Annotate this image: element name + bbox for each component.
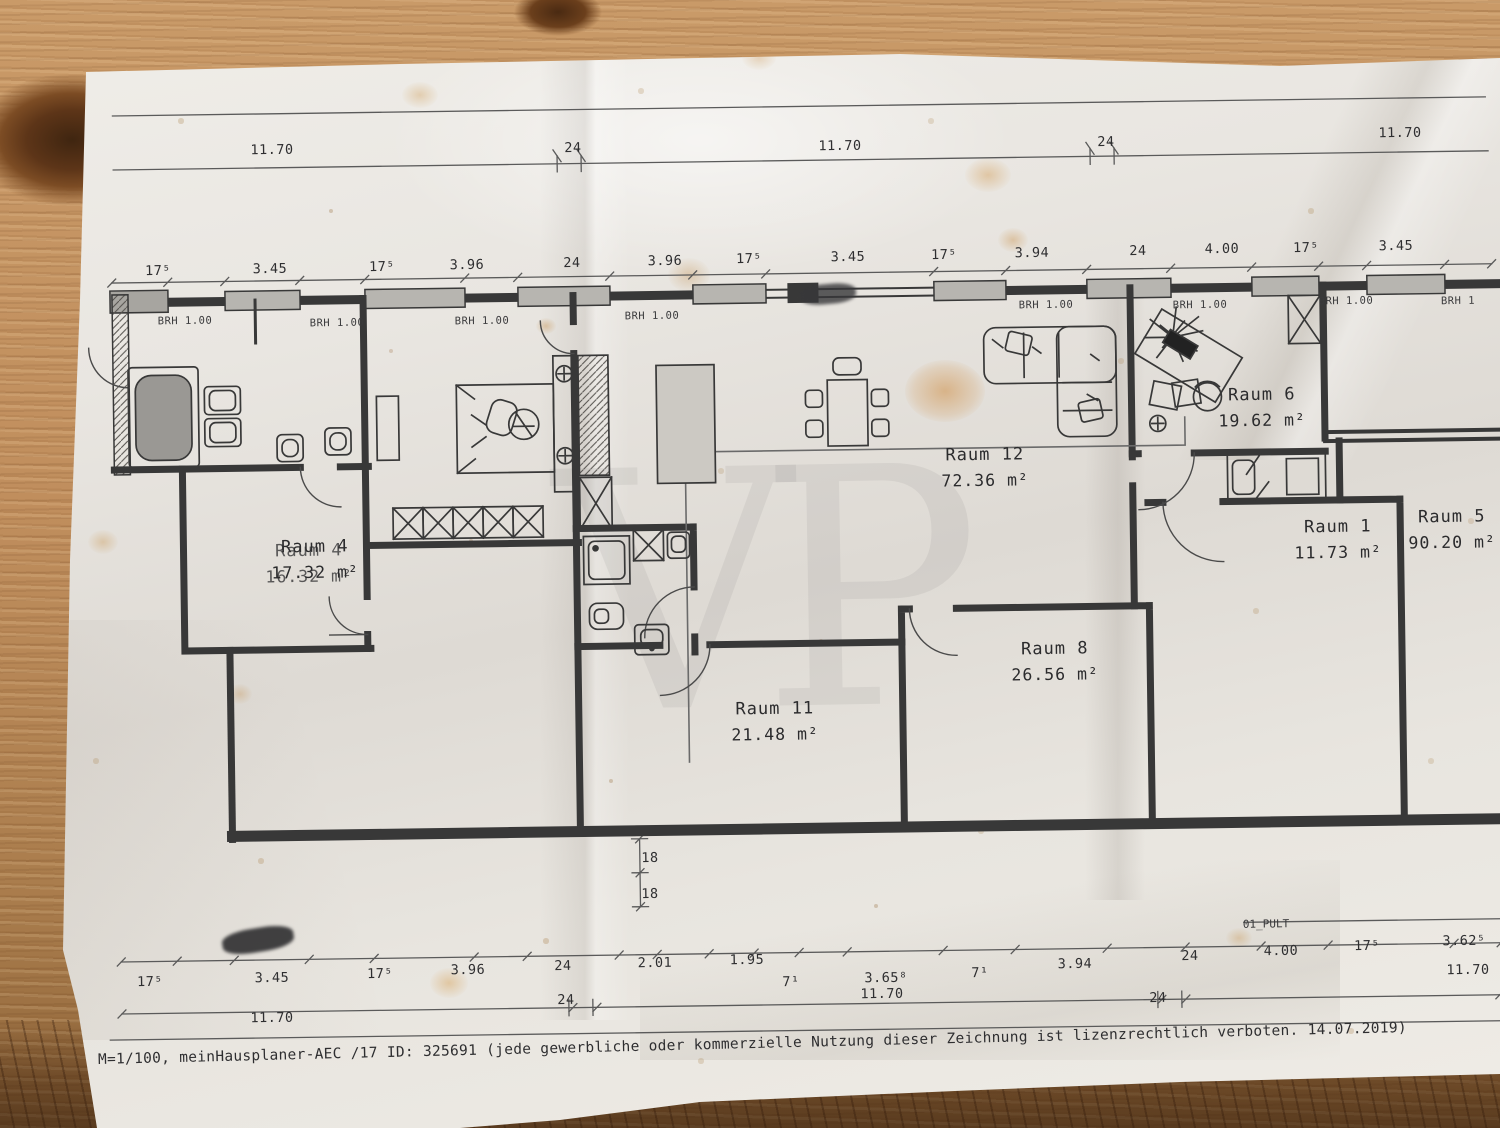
dim-bottom: 3.62⁵ xyxy=(1442,933,1485,950)
dim-top-win: 3.96 xyxy=(648,253,683,269)
room-label-raum5: Raum 590.20 m² xyxy=(1408,504,1496,555)
dim-1170: 11.70 xyxy=(860,986,903,1003)
shower xyxy=(583,536,630,585)
pult-label: 01_PULT xyxy=(1243,917,1290,931)
dim-bottom: 3.65⁸ xyxy=(864,970,907,987)
dim-bottom: 24 xyxy=(1181,948,1198,964)
dim-top-main: 11.70 xyxy=(250,142,293,159)
toilet xyxy=(277,434,303,461)
room-label-raum4: Raum 417.32 m² xyxy=(271,534,359,585)
brh-label: BRH 1.00 xyxy=(455,315,510,328)
dim-1170: 11.70 xyxy=(1446,962,1489,979)
dim-top-win: 4.00 xyxy=(1205,241,1240,257)
wc-toilet xyxy=(589,603,623,629)
washbasin xyxy=(635,624,669,654)
shower-room-cabinet xyxy=(633,529,663,560)
dim-top-win: 17⁵ xyxy=(1293,240,1319,256)
dim-18: 18 xyxy=(641,850,658,866)
dim-18: 18 xyxy=(641,886,658,902)
dim-top-win: 17⁵ xyxy=(736,251,762,267)
dim-bottom: 4.00 xyxy=(1264,943,1299,959)
brh-label: BRH 1 xyxy=(1441,295,1475,307)
wardrobe xyxy=(393,506,543,539)
dim-bottom: 2.01 xyxy=(638,955,673,971)
floor-outlet xyxy=(1150,415,1166,431)
kitchen-island xyxy=(656,365,716,484)
dim-bottom: 17⁵ xyxy=(137,974,163,990)
dim-24: 24 xyxy=(1149,990,1166,1006)
floorplan-paper-sheet: VP xyxy=(0,0,1500,1128)
dim-bottom: 3.94 xyxy=(1058,956,1093,972)
double-bed xyxy=(456,384,554,473)
dim-1170: 11.70 xyxy=(250,1010,293,1027)
brh-label: BRH 1.00 xyxy=(1019,299,1074,312)
room-label-raum6: Raum 619.62 m² xyxy=(1218,382,1306,433)
dim-bottom: 17⁵ xyxy=(1354,938,1380,954)
dim-top-main: 24 xyxy=(564,140,581,156)
dim-top-win: 24 xyxy=(1129,243,1146,259)
corner-sofa xyxy=(983,326,1117,438)
bidet xyxy=(325,428,351,455)
room-label-raum8: Raum 826.56 m² xyxy=(1011,636,1099,687)
kitchen-cabinets xyxy=(578,355,612,529)
dim-bottom: 3.96 xyxy=(451,962,486,978)
dim-bottom: 24 xyxy=(554,958,571,974)
dim-24: 24 xyxy=(557,992,574,1008)
dim-top-win: 17⁵ xyxy=(369,259,395,275)
photo-of-floorplan: VP xyxy=(0,0,1500,1128)
dim-bottom: 17⁵ xyxy=(367,966,393,982)
dim-top-win: 17⁵ xyxy=(145,263,171,279)
dim-top-win: 24 xyxy=(563,255,580,271)
dim-top-main: 24 xyxy=(1097,134,1114,150)
brh-label: BRH 1.00 xyxy=(310,317,365,330)
dresser xyxy=(376,396,399,460)
dim-top-win: 3.45 xyxy=(831,249,866,265)
dim-top-win: 3.45 xyxy=(253,261,288,277)
dim-top-main: 11.70 xyxy=(1378,125,1421,142)
bathroom-sinks xyxy=(204,386,241,446)
dim-bottom: 3.45 xyxy=(255,970,290,986)
dim-top-win: 3.94 xyxy=(1015,245,1050,261)
brh-label: BRH 1.00 xyxy=(1319,295,1374,308)
dim-top-win: 3.45 xyxy=(1379,238,1414,254)
dim-top-win: 17⁵ xyxy=(931,247,957,263)
brh-label: BRH 1.00 xyxy=(1173,299,1228,312)
dim-bottom: 7¹ xyxy=(971,965,988,981)
raum6-wardrobe xyxy=(1288,295,1321,343)
room-label-raum1: Raum 111.73 m² xyxy=(1294,514,1382,565)
dim-top-win: 3.96 xyxy=(450,257,485,273)
windows xyxy=(225,274,1445,310)
brh-label: BRH 1.00 xyxy=(158,315,213,328)
dim-top-main: 11.70 xyxy=(818,138,861,155)
dim-bottom: 1.95 xyxy=(730,952,765,968)
brh-label: BRH 1.00 xyxy=(625,310,680,323)
bathtub xyxy=(128,367,199,468)
dining-table xyxy=(805,357,889,446)
single-bed xyxy=(1227,453,1326,500)
dim-bottom: 7¹ xyxy=(782,974,799,990)
room-label-raum11: Raum 1121.48 m² xyxy=(731,696,819,747)
room-label-raum12: Raum 1272.36 m² xyxy=(941,442,1029,493)
